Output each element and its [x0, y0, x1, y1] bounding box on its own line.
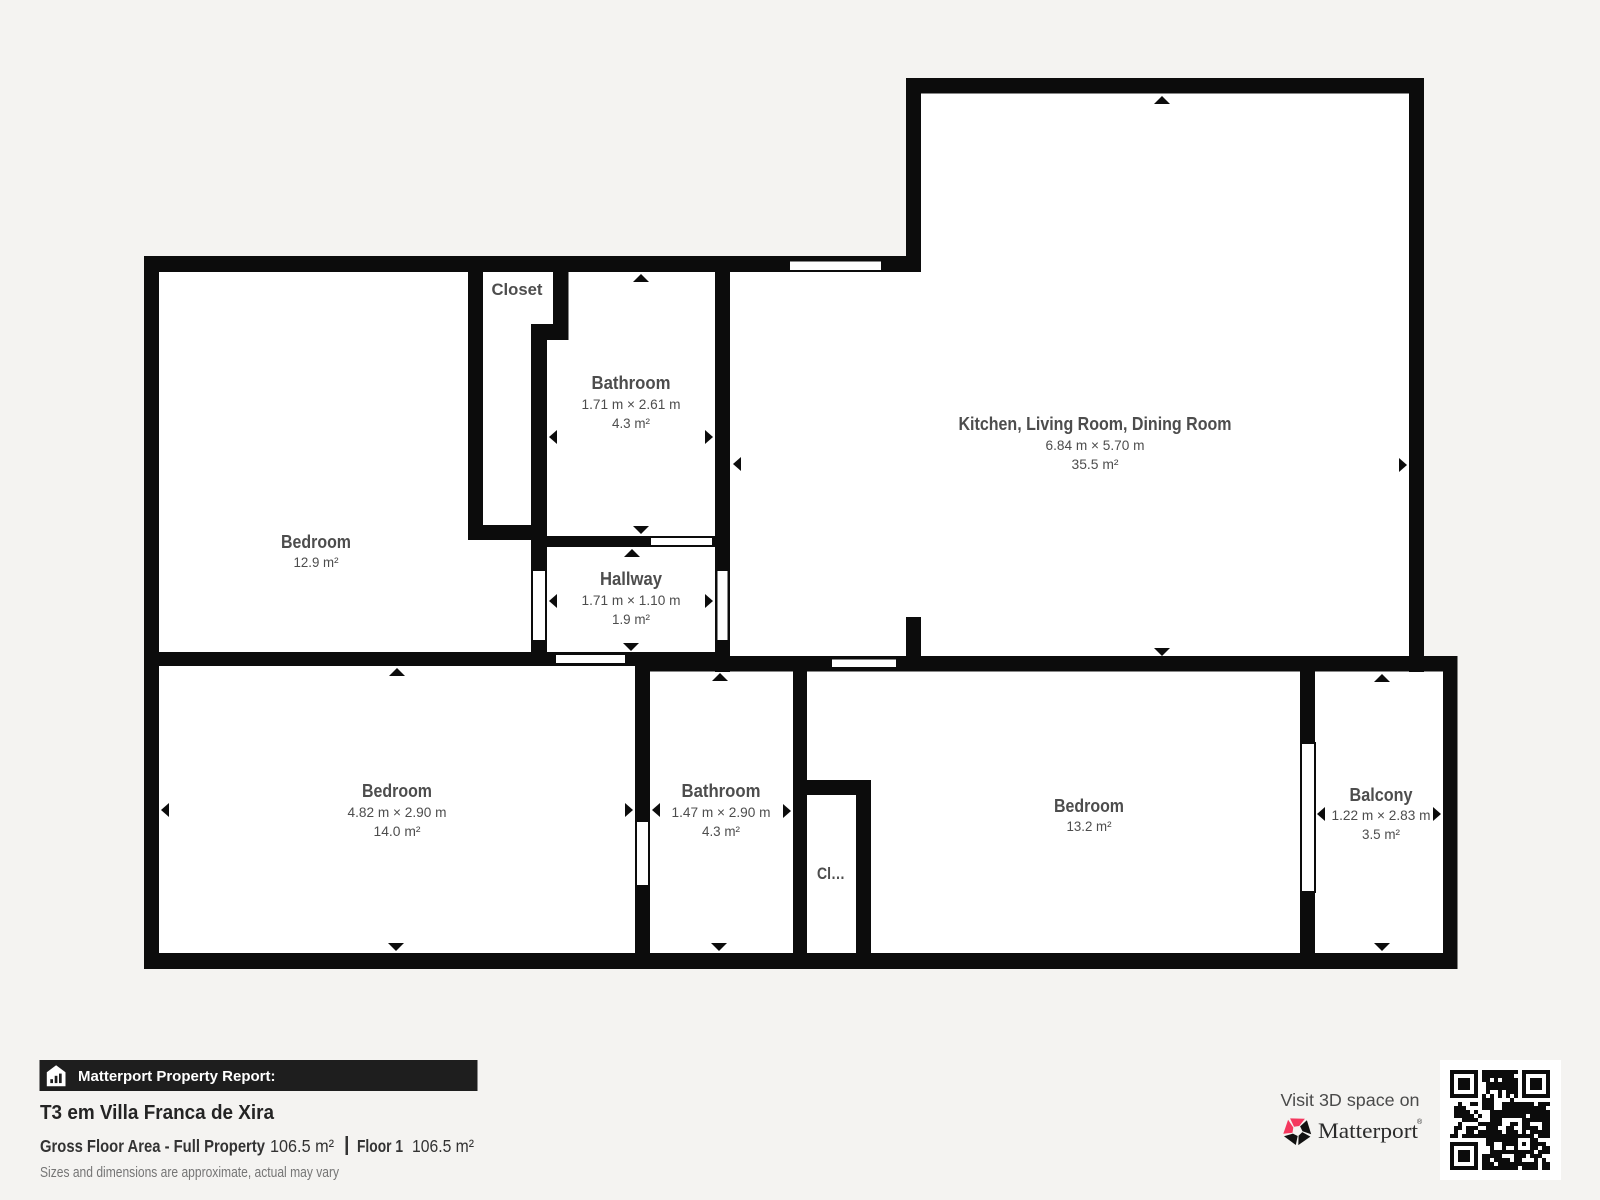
svg-text:4.3 m²: 4.3 m² — [702, 824, 740, 839]
svg-text:3.5 m²: 3.5 m² — [1362, 827, 1400, 842]
svg-text:Sizes and dimensions are appro: Sizes and dimensions are approximate, ac… — [40, 1164, 339, 1181]
svg-text:13.2 m²: 13.2 m² — [1067, 819, 1112, 834]
svg-text:T3 em Villa Franca de Xira: T3 em Villa Franca de Xira — [40, 1102, 275, 1124]
svg-text:106.5 m²: 106.5 m² — [270, 1136, 334, 1156]
svg-text:Matterport Property Report:: Matterport Property Report: — [78, 1068, 276, 1085]
svg-text:106.5 m²: 106.5 m² — [412, 1136, 474, 1156]
svg-text:®: ® — [1417, 1118, 1423, 1126]
svg-text:Visit 3D space on: Visit 3D space on — [1281, 1090, 1420, 1110]
svg-text:Bedroom: Bedroom — [1054, 796, 1124, 816]
svg-text:1.71 m × 2.61 m: 1.71 m × 2.61 m — [582, 397, 681, 412]
svg-text:Hallway: Hallway — [600, 569, 662, 589]
svg-text:Balcony: Balcony — [1350, 785, 1413, 805]
svg-text:4.3 m²: 4.3 m² — [612, 416, 650, 431]
svg-text:Matterport: Matterport — [1318, 1118, 1418, 1143]
svg-text:1.71 m × 1.10 m: 1.71 m × 1.10 m — [582, 593, 681, 608]
svg-text:Closet: Closet — [492, 280, 543, 299]
svg-text:6.84 m × 5.70 m: 6.84 m × 5.70 m — [1046, 438, 1145, 453]
svg-text:Floor 1: Floor 1 — [357, 1136, 403, 1156]
svg-text:35.5 m²: 35.5 m² — [1072, 457, 1120, 472]
svg-text:Bathroom: Bathroom — [682, 781, 761, 801]
svg-text:1.9 m²: 1.9 m² — [612, 612, 650, 627]
svg-text:4.82 m × 2.90 m: 4.82 m × 2.90 m — [348, 805, 447, 820]
svg-text:Bedroom: Bedroom — [281, 532, 351, 552]
svg-text:12.9 m²: 12.9 m² — [294, 555, 339, 570]
svg-text:14.0 m²: 14.0 m² — [374, 824, 422, 839]
svg-text:Cl…: Cl… — [817, 864, 845, 883]
svg-text:Bathroom: Bathroom — [592, 373, 671, 393]
svg-text:Gross Floor Area - Full Proper: Gross Floor Area - Full Property — [40, 1136, 265, 1156]
svg-text:Bedroom: Bedroom — [362, 781, 432, 801]
svg-text:1.22 m × 2.83 m: 1.22 m × 2.83 m — [1332, 808, 1431, 823]
svg-text:Kitchen, Living Room, Dining R: Kitchen, Living Room, Dining Room — [959, 414, 1232, 434]
svg-text:1.47 m × 2.90 m: 1.47 m × 2.90 m — [672, 805, 771, 820]
